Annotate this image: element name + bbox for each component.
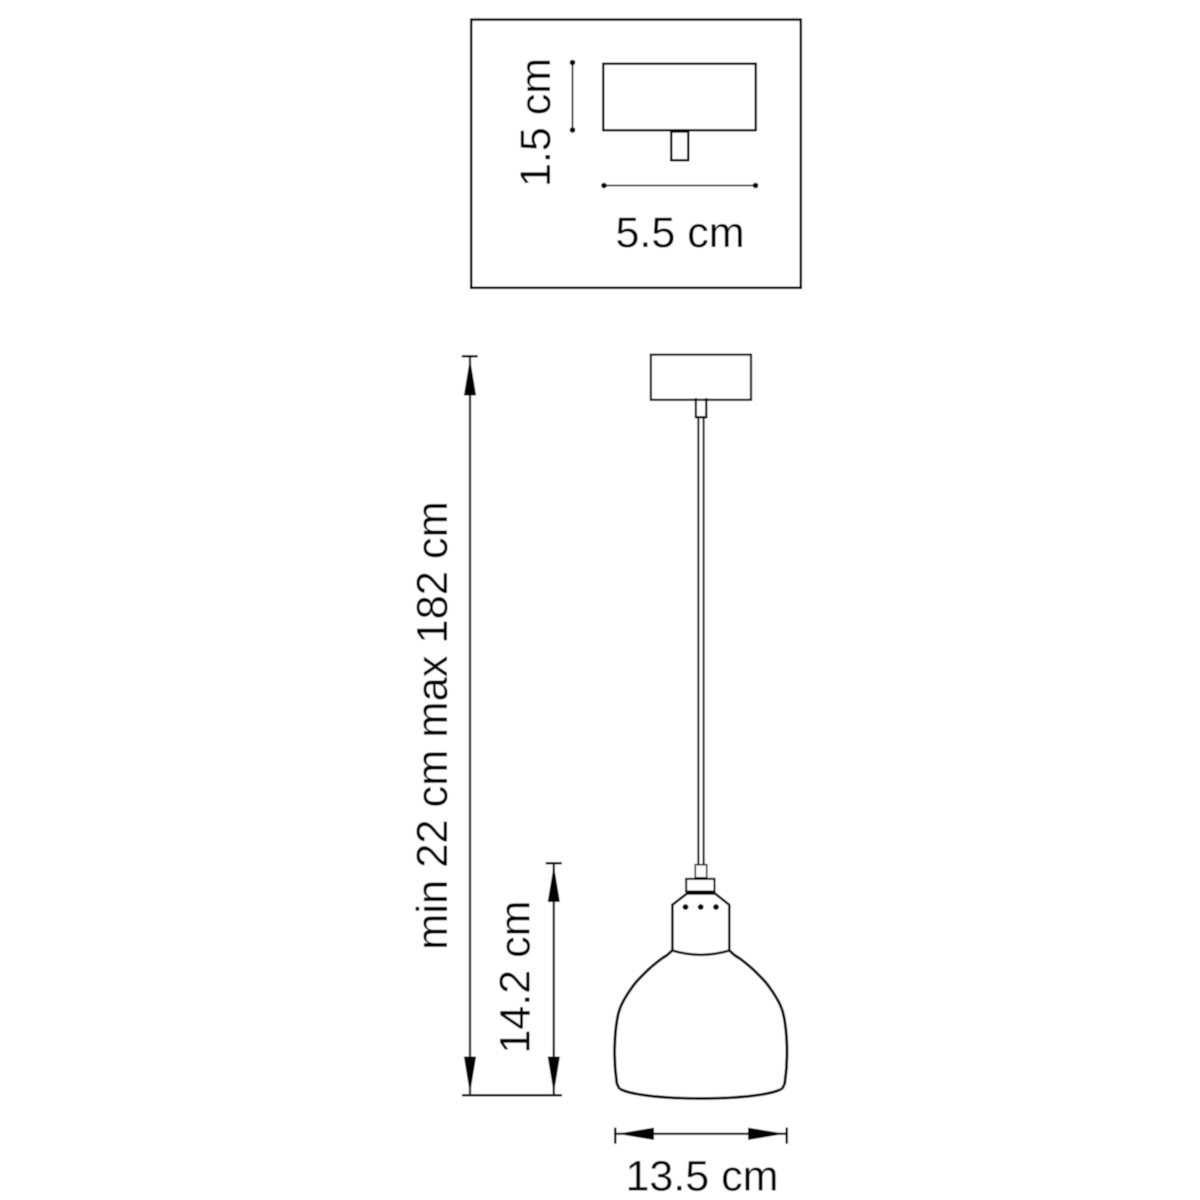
svg-text:14.2 cm: 14.2 cm — [492, 901, 540, 1054]
svg-text:13.5 cm: 13.5 cm — [626, 1153, 779, 1200]
svg-text:min 22 cm max 182 cm: min 22 cm max 182 cm — [409, 501, 457, 950]
svg-text:5.5 cm: 5.5 cm — [615, 209, 744, 257]
svg-text:1.5 cm: 1.5 cm — [512, 58, 560, 187]
